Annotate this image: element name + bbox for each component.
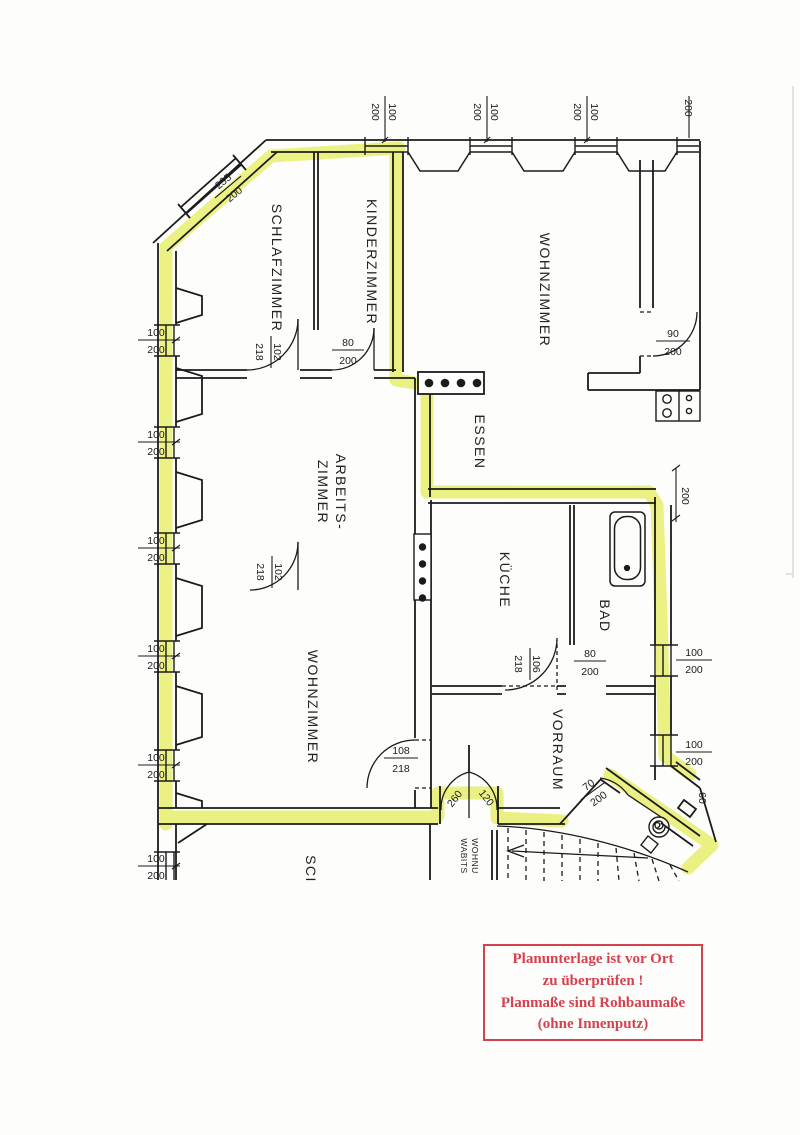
dim-value: 100 [147, 752, 165, 764]
wall-highlighter [166, 148, 712, 868]
dim-top-3: 100 200 [571, 103, 600, 121]
dim-value: 200 [471, 103, 483, 121]
dim-value: 200 [581, 666, 599, 678]
dim-value: 102 [272, 563, 284, 581]
room-label-essen: ESSEN [472, 415, 488, 470]
stamp-line-2: zu überprüfen ! [543, 971, 644, 993]
dim-value: 200 [369, 103, 381, 121]
dim-value: 100 [147, 853, 165, 865]
dim-value: 80 [342, 337, 354, 349]
dim-value: 80 [584, 648, 596, 660]
dim-value: 218 [392, 763, 410, 775]
dim-value: 200 [147, 446, 165, 458]
dim-window-bad: 80 200 [581, 648, 599, 678]
dim-door-wohnzimmer-bottom: 108 218 [392, 745, 410, 775]
room-label-wohnzimmer-bottom: WOHNZIMMER [305, 650, 321, 765]
dim-value: 200 [664, 346, 682, 358]
dim-right-200: 200 [679, 487, 691, 505]
staircase [497, 826, 688, 881]
dim-value: 200 [147, 769, 165, 781]
stove-icon [656, 391, 700, 421]
dim-value: 218 [253, 343, 265, 361]
approval-stamp: Planunterlage ist vor Ort zu überprüfen … [483, 944, 703, 1041]
dim-value: 100 [147, 643, 165, 655]
page-edge-line [786, 86, 793, 578]
bathtub-icon [610, 512, 645, 586]
dim-value: 200 [147, 870, 165, 882]
dim-value: 102 [271, 343, 283, 361]
stamp-line-1: Planunterlage ist vor Ort [513, 949, 674, 971]
dim-value: 200 [147, 660, 165, 672]
room-label-kinderzimmer: KINDERZIMMER [364, 199, 380, 325]
dim-value: 106 [530, 655, 542, 673]
dim-top-2: 100 200 [471, 103, 500, 121]
dim-value: 70 [581, 777, 598, 794]
dim-value: 218 [254, 563, 266, 581]
dim-value: 90 [667, 328, 679, 340]
room-label-wohnzimmer-top: WOHNZIMMER [537, 233, 553, 348]
dim-value: 200 [147, 344, 165, 356]
spiral-icon [641, 817, 669, 853]
dim-value: 200 [679, 487, 691, 505]
dim-value: 200 [339, 355, 357, 367]
dim-value: 200 [147, 552, 165, 564]
dim-right-windows: 100 200 100 200 [685, 647, 703, 768]
dim-value: 100 [685, 739, 703, 751]
stamp-line-4: (ohne Innenputz) [538, 1014, 648, 1036]
dim-door-arbeitszimmer: 102 218 [254, 556, 284, 588]
dim-top-1: 100 200 [369, 103, 398, 121]
dim-value: 100 [386, 103, 398, 121]
dim-door-schlafzimmer: 102 218 [253, 336, 283, 368]
dim-value: 100 [588, 103, 600, 121]
dim-door-wohnzimmer-top: 90 200 [664, 328, 682, 358]
dim-value: 100 [147, 429, 165, 441]
dim-value: 218 [512, 655, 524, 673]
dim-value: 100 [685, 647, 703, 659]
outer-walls [153, 140, 700, 880]
dim-value: 200 [685, 664, 703, 676]
stair-direction-arrow [508, 845, 648, 858]
room-label-bad: BAD [597, 599, 613, 632]
room-label-arbeitszimmer-line2: ZIMMER [315, 460, 331, 524]
radiator-horizontal-icon [418, 372, 484, 394]
room-label-sci: SCI [303, 855, 319, 883]
dim-value: 200 [571, 103, 583, 121]
dim-value: 100 [488, 103, 500, 121]
dim-value: 200 [682, 99, 694, 117]
dim-value: 60 [696, 792, 708, 804]
interior-walls [176, 152, 716, 880]
dim-entrance-60: 60 [696, 792, 708, 804]
room-label-wohnu-line1: WOHNU [470, 838, 480, 874]
dim-value: 100 [147, 535, 165, 547]
room-label-arbeitszimmer-line1: ARBEITS- [333, 454, 349, 531]
radiator-vertical-icon [414, 534, 431, 601]
bay-trapezoids [408, 152, 677, 171]
dim-value: 100 [147, 327, 165, 339]
dim-value: 108 [392, 745, 410, 757]
dim-value: 200 [685, 756, 703, 768]
room-label-schlafzimmer: SCHLAFZIMMER [269, 204, 285, 332]
room-label-vorraum: VORRAUM [550, 709, 566, 791]
room-label-kueche: KÜCHE [497, 552, 514, 609]
room-label-wohnu-line2: WABITS [459, 838, 469, 873]
dim-top-4: 200 [682, 99, 694, 117]
stamp-line-3: Planmaße sind Rohbaumaße [501, 993, 685, 1015]
dim-door-bad: 106 218 [512, 648, 542, 680]
dim-door-kinderzimmer: 80 200 [339, 337, 357, 367]
